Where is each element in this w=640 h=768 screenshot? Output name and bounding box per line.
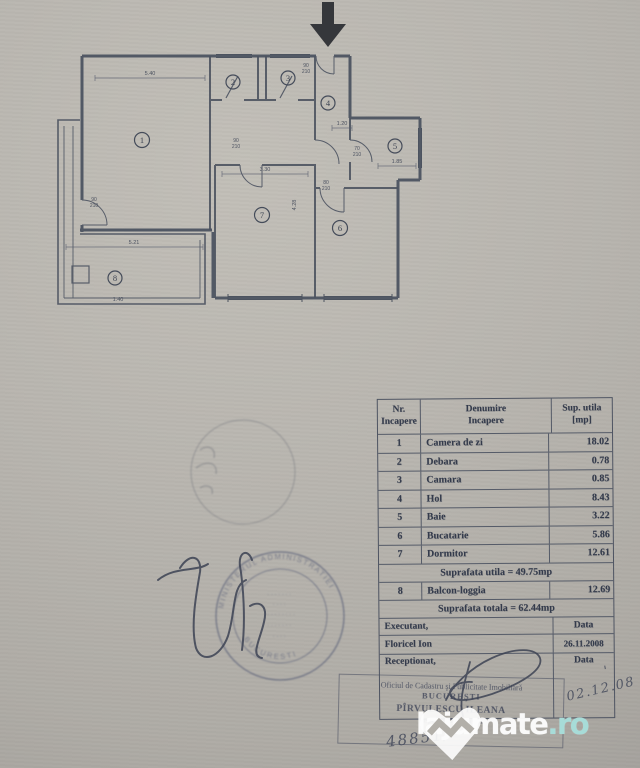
stamp-center-line: ···· [273, 601, 288, 608]
lajumate-logo-icon [415, 705, 488, 765]
stamp-center-line: ········· [264, 611, 297, 618]
stamps-overlay: MINISTERUL ADMINISTRATIEI BUCURESTI ····… [0, 0, 640, 768]
round-stamp: MINISTERUL ADMINISTRATIEI BUCURESTI ····… [216, 552, 344, 680]
watermark-tld: .ro [547, 707, 588, 741]
watermark: lajumate.ro [416, 707, 588, 741]
stamp-center-line: ······· [267, 622, 293, 629]
svg-text:BUCURESTI: BUCURESTI [242, 635, 299, 661]
stamp-center-line: ······· [267, 591, 293, 598]
faint-round-stamp [191, 420, 295, 524]
stamp-arc-bottom-text: BUCURESTI [242, 635, 299, 661]
stamp-center-line: ···· [273, 633, 288, 640]
scanned-floor-plan-document: 5.40 3.30 1.20 1.85 5.21 1.40 4.28 90 21… [0, 0, 640, 768]
